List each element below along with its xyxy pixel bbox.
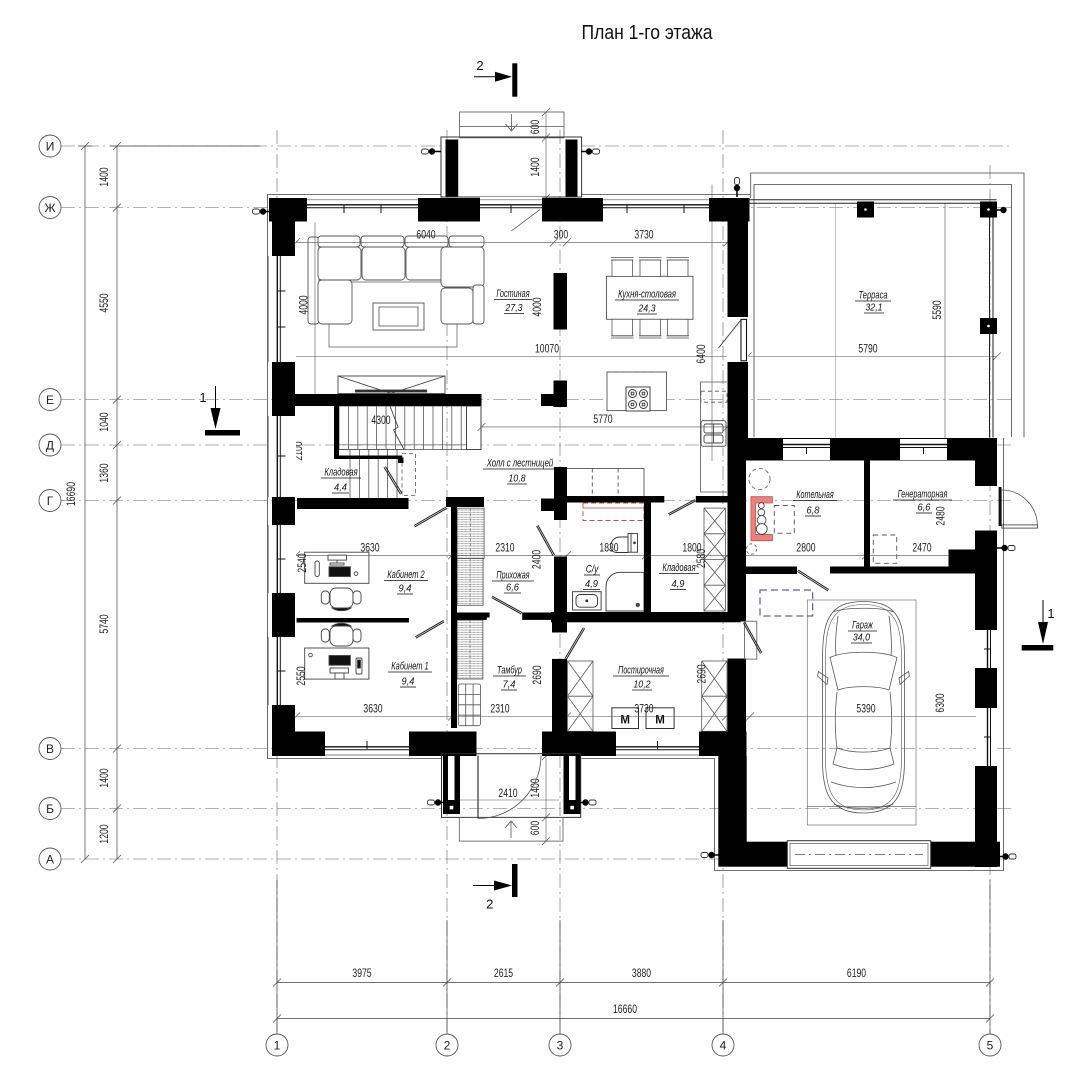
svg-text:Б: Б — [46, 802, 54, 816]
svg-text:3630: 3630 — [363, 702, 382, 716]
svg-text:1: 1 — [274, 1039, 281, 1053]
svg-text:2690: 2690 — [530, 665, 544, 684]
svg-text:1: 1 — [1047, 606, 1054, 621]
svg-text:В: В — [46, 742, 54, 756]
svg-text:5740: 5740 — [97, 614, 111, 633]
svg-text:Тамбур: Тамбур — [497, 665, 522, 677]
svg-text:Кабинет 2: Кабинет 2 — [387, 569, 424, 581]
svg-text:6040: 6040 — [416, 228, 435, 242]
svg-text:3730: 3730 — [634, 228, 653, 242]
svg-text:Прихожая: Прихожая — [496, 570, 529, 582]
svg-text:6,6: 6,6 — [506, 582, 519, 594]
svg-text:2800: 2800 — [796, 541, 815, 555]
svg-text:Генераторная: Генераторная — [898, 489, 948, 501]
svg-text:10,2: 10,2 — [633, 679, 650, 691]
svg-text:2580: 2580 — [694, 549, 708, 568]
svg-text:32,1: 32,1 — [865, 302, 882, 314]
svg-text:2470: 2470 — [912, 541, 931, 555]
svg-text:Д: Д — [46, 439, 54, 453]
svg-text:6,8: 6,8 — [807, 505, 820, 517]
svg-text:4,9: 4,9 — [585, 578, 598, 590]
svg-text:1: 1 — [199, 390, 206, 405]
svg-text:9,4: 9,4 — [402, 676, 415, 688]
svg-text:3975: 3975 — [352, 966, 371, 980]
svg-text:Холл с лестницей: Холл с лестницей — [486, 458, 553, 470]
svg-text:С/у: С/у — [586, 564, 600, 576]
svg-text:5770: 5770 — [593, 412, 612, 426]
svg-text:Е: Е — [46, 393, 54, 407]
svg-text:4,4: 4,4 — [334, 482, 347, 494]
svg-text:2410: 2410 — [498, 786, 517, 800]
svg-text:2690: 2690 — [695, 664, 709, 683]
svg-text:2615: 2615 — [494, 966, 513, 980]
svg-text:4300: 4300 — [371, 413, 390, 427]
svg-text:План 1-го этажа: План 1-го этажа — [582, 22, 714, 44]
svg-text:24,3: 24,3 — [638, 303, 656, 315]
svg-text:1200: 1200 — [97, 824, 111, 843]
svg-text:Терраса: Терраса — [858, 290, 887, 302]
svg-text:Гостиная: Гостиная — [496, 288, 529, 300]
svg-text:5: 5 — [987, 1039, 994, 1053]
svg-text:4550: 4550 — [97, 293, 111, 312]
svg-text:4000: 4000 — [297, 295, 311, 314]
svg-text:2400: 2400 — [530, 550, 544, 569]
svg-text:Кухня-столовая: Кухня-столовая — [618, 289, 676, 301]
svg-text:1830: 1830 — [599, 541, 618, 555]
svg-text:27,3: 27,3 — [505, 302, 523, 314]
svg-text:2: 2 — [444, 1039, 451, 1053]
svg-text:3: 3 — [557, 1039, 564, 1053]
svg-text:4: 4 — [720, 1039, 727, 1053]
svg-text:Кладовая: Кладовая — [662, 562, 695, 574]
svg-text:6300: 6300 — [933, 693, 947, 712]
svg-text:5390: 5390 — [856, 702, 875, 716]
svg-text:Гараж: Гараж — [852, 620, 873, 632]
svg-text:Постирочная: Постирочная — [618, 665, 664, 677]
svg-text:7,4: 7,4 — [503, 679, 516, 691]
svg-text:И: И — [46, 140, 55, 154]
svg-text:4,9: 4,9 — [672, 578, 685, 590]
svg-text:6,6: 6,6 — [918, 502, 931, 514]
svg-text:34,0: 34,0 — [853, 632, 870, 644]
svg-text:9,4: 9,4 — [399, 583, 412, 595]
svg-text:1400: 1400 — [97, 167, 111, 186]
svg-text:5790: 5790 — [858, 342, 877, 356]
svg-text:10070: 10070 — [535, 342, 559, 356]
svg-text:2480: 2480 — [934, 506, 948, 525]
svg-text:1400: 1400 — [97, 768, 111, 787]
svg-text:2310: 2310 — [495, 541, 514, 555]
svg-text:16660: 16660 — [613, 1002, 637, 1016]
svg-text:2540: 2540 — [295, 553, 309, 572]
svg-text:Г: Г — [47, 494, 54, 508]
svg-text:3730: 3730 — [634, 702, 653, 716]
svg-text:4000: 4000 — [530, 297, 544, 316]
svg-text:2: 2 — [486, 897, 493, 912]
svg-text:300: 300 — [554, 228, 569, 242]
svg-text:А: А — [46, 853, 54, 867]
svg-text:Кабинет 1: Кабинет 1 — [391, 661, 428, 673]
svg-text:3880: 3880 — [632, 966, 651, 980]
svg-text:2: 2 — [476, 58, 483, 73]
svg-text:Котельная: Котельная — [796, 489, 833, 501]
svg-text:16690: 16690 — [64, 482, 78, 506]
svg-text:600: 600 — [528, 120, 542, 135]
svg-text:3630: 3630 — [360, 541, 379, 555]
svg-text:1400: 1400 — [528, 778, 542, 797]
svg-text:10,8: 10,8 — [508, 473, 525, 485]
svg-text:2310: 2310 — [490, 702, 509, 716]
svg-text:1040: 1040 — [97, 412, 111, 431]
svg-text:5590: 5590 — [930, 300, 944, 319]
svg-text:Кладовая: Кладовая — [324, 467, 357, 479]
svg-text:2550: 2550 — [294, 666, 308, 685]
svg-text:600: 600 — [528, 821, 542, 836]
svg-text:1400: 1400 — [528, 157, 542, 176]
svg-text:6400: 6400 — [694, 344, 708, 363]
svg-text:6190: 6190 — [847, 966, 866, 980]
svg-text:1360: 1360 — [97, 463, 111, 482]
svg-text:Ж: Ж — [44, 201, 55, 215]
